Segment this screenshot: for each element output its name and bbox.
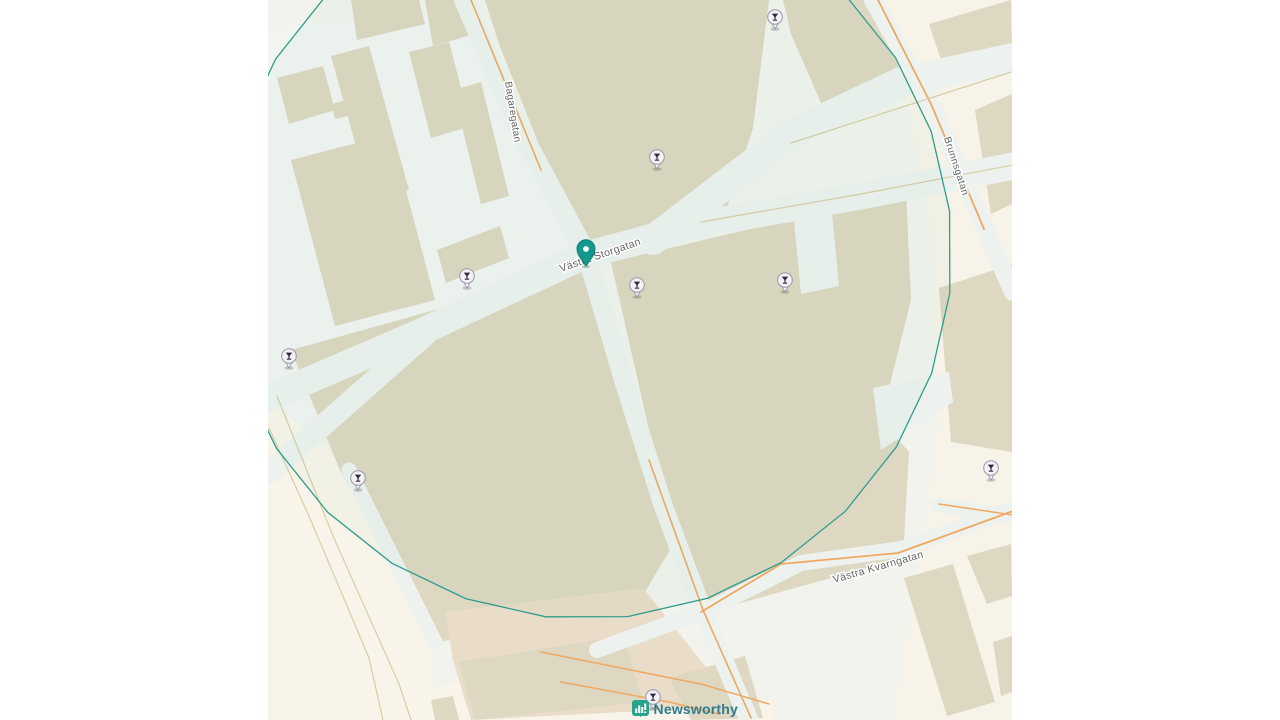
map-container[interactable]: BagaregatanBrunnsgatanVästra StorgatanVä… (268, 0, 1012, 720)
newsworthy-logo-icon (632, 700, 649, 717)
screenshot-stage: BagaregatanBrunnsgatanVästra StorgatanVä… (0, 0, 1280, 720)
newsworthy-attribution[interactable]: Newsworthy (632, 700, 738, 717)
map-canvas[interactable]: BagaregatanBrunnsgatanVästra StorgatanVä… (268, 0, 1012, 720)
newsworthy-brand-text: Newsworthy (654, 701, 738, 717)
